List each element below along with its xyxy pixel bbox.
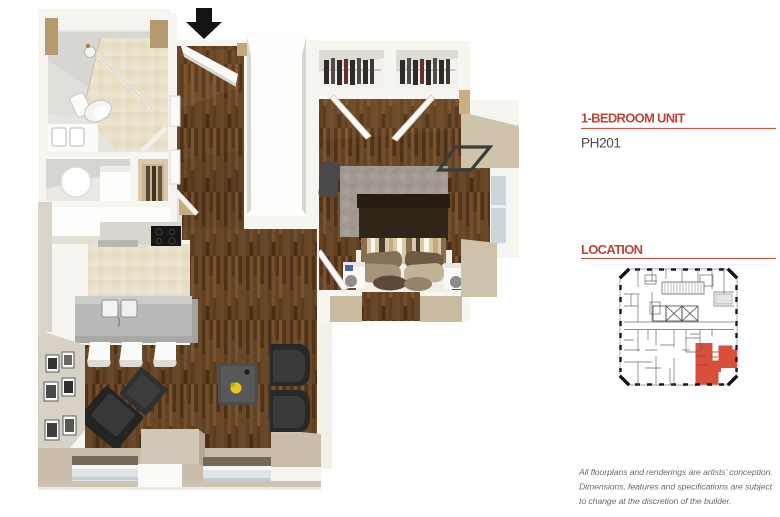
svg-text:PH201: PH201	[581, 135, 621, 150]
svg-text:Dimensions, features and speci: Dimensions, features and specifications …	[579, 482, 773, 492]
svg-text:All floorplans and renderings: All floorplans and renderings are artist…	[578, 467, 773, 477]
svg-text:LOCATION: LOCATION	[581, 242, 643, 257]
svg-text:1-BEDROOM UNIT: 1-BEDROOM UNIT	[581, 111, 685, 126]
svg-text:to change at the discretion of: to change at the discretion of the build…	[579, 496, 731, 506]
